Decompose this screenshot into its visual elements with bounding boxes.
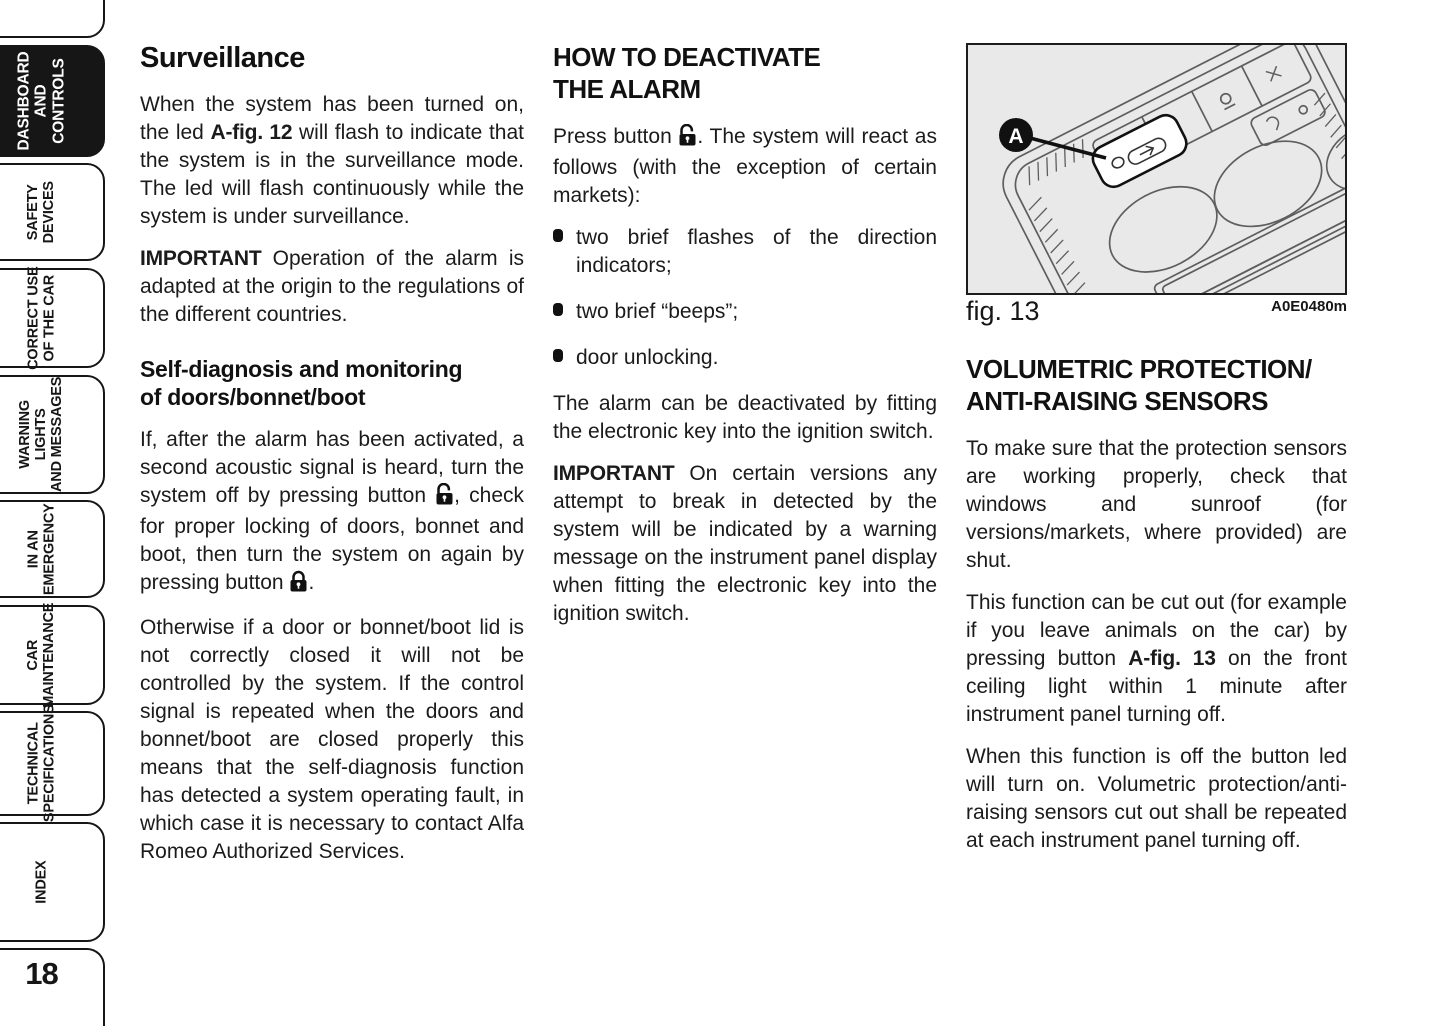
tab-previous-partial: [0, 0, 105, 38]
ceiling-light-diagram: A: [968, 45, 1345, 293]
sidebar-item-safety-devices: SAFETY DEVICES: [0, 163, 105, 261]
tab-label: TECHNICAL SPECIFICATIONS: [25, 705, 57, 823]
paragraph: To make sure that the protection sensors…: [966, 435, 1347, 575]
page-number-tab: 18: [0, 948, 105, 1026]
section-tab-sidebar: DASHBOARD AND CONTROLS SAFETY DEVICES CO…: [0, 0, 112, 1026]
paragraph-important: IMPORTANT On certain versions any attemp…: [553, 460, 937, 628]
paragraph: The alarm can be deactivated by fitting …: [553, 390, 937, 446]
tab-label: DASHBOARD AND CONTROLS: [15, 52, 67, 151]
figure-caption-row: fig. 13 A0E0480m: [966, 296, 1347, 327]
figure-13-frame: A: [966, 43, 1347, 295]
figure-reference: A-fig. 13: [1128, 647, 1215, 670]
sidebar-item-car-maintenance: CAR MAINTENANCE: [0, 605, 105, 705]
padlock-open-icon: [435, 483, 454, 513]
text-run: Press button: [553, 125, 678, 148]
heading-self-diagnosis: Self-diagnosis and monitoring of doors/b…: [140, 355, 524, 411]
paragraph: If, after the alarm has been activated, …: [140, 426, 524, 600]
sidebar-item-warning-lights-and-messages: WARNING LIGHTS AND MESSAGES: [0, 375, 105, 494]
tab-label: WARNING LIGHTS AND MESSAGES: [17, 373, 66, 496]
tab-label: SAFETY DEVICES: [25, 181, 57, 243]
important-label: IMPORTANT: [553, 462, 674, 485]
column-deactivate-alarm: HOW TO DEACTIVATE THE ALARM Press button…: [553, 0, 937, 642]
heading-surveillance: Surveillance: [140, 42, 524, 75]
list-item-text: door unlocking.: [576, 344, 937, 372]
figure-caption: fig. 13: [966, 296, 1040, 327]
tab-label: IN AN EMERGENCY: [25, 503, 57, 595]
square-bullet-icon: [553, 303, 563, 316]
tab-label: INDEX: [33, 860, 49, 903]
sidebar-item-technical-specifications: TECHNICAL SPECIFICATIONS: [0, 711, 105, 816]
sidebar-item-dashboard-and-controls: DASHBOARD AND CONTROLS: [0, 45, 105, 157]
padlock-open-icon: [678, 124, 697, 154]
paragraph: Otherwise if a door or bonnet/boot lid i…: [140, 614, 524, 866]
paragraph: When the system has been turned on, the …: [140, 91, 524, 231]
padlock-closed-icon: [289, 570, 308, 600]
square-bullet-icon: [553, 349, 563, 362]
manual-page: DASHBOARD AND CONTROLS SAFETY DEVICES CO…: [0, 0, 1445, 1026]
list-item-text: two brief “beeps”;: [576, 298, 937, 326]
figure-reference: A-fig. 12: [211, 121, 293, 144]
tab-label: CAR MAINTENANCE: [25, 603, 57, 708]
paragraph: Press button . The system will react as …: [553, 123, 937, 210]
page-number: 18: [25, 956, 57, 1026]
list-item: two brief flashes of the direction indic…: [553, 224, 937, 280]
sidebar-item-index: INDEX: [0, 822, 105, 942]
paragraph: This function can be cut out (for exampl…: [966, 589, 1347, 729]
list-item-text: two brief flashes of the direction indic…: [576, 224, 937, 280]
text-run: On certain versions any attempt to break…: [553, 462, 937, 625]
reaction-list: two brief flashes of the direction indic…: [553, 224, 937, 372]
important-label: IMPORTANT: [140, 247, 261, 270]
column-volumetric-protection: A fig. 13 A0E0480m VOLUMETRIC PROTECTION…: [966, 0, 1347, 869]
callout-a-label: A: [1008, 125, 1023, 148]
sidebar-item-correct-use-of-the-car: CORRECT USE OF THE CAR: [0, 268, 105, 368]
figure-code: A0E0480m: [1271, 298, 1347, 315]
list-item: two brief “beeps”;: [553, 298, 937, 326]
heading-how-to-deactivate: HOW TO DEACTIVATE THE ALARM: [553, 42, 937, 105]
list-item: door unlocking.: [553, 344, 937, 372]
sidebar-item-in-an-emergency: IN AN EMERGENCY: [0, 500, 105, 598]
heading-volumetric-protection: VOLUMETRIC PROTECTION/ ANTI-RAISING SENS…: [966, 354, 1347, 417]
column-surveillance: Surveillance When the system has been tu…: [140, 0, 524, 880]
paragraph: When this function is off the button led…: [966, 743, 1347, 855]
tab-label: CORRECT USE OF THE CAR: [25, 266, 57, 369]
text-run: .: [308, 571, 314, 594]
square-bullet-icon: [553, 229, 563, 242]
paragraph-important: IMPORTANT Operation of the alarm is adap…: [140, 245, 524, 329]
